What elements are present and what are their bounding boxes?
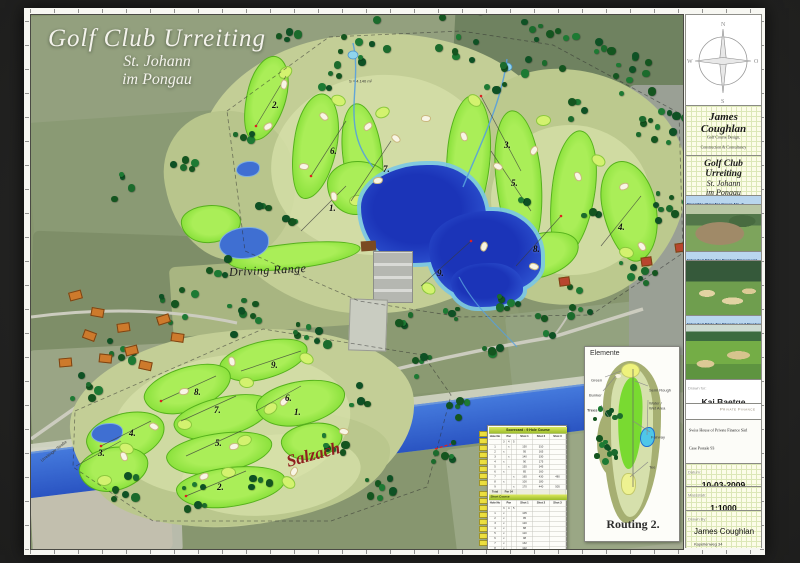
hole-number: 5. xyxy=(511,178,518,188)
table-cell: 8 xyxy=(489,547,502,551)
title-block-sidebar: N O S W James Coughlan Golf Course Desig… xyxy=(685,14,762,548)
legend-fairway: Fairway xyxy=(651,429,679,447)
hole-number: 7. xyxy=(214,405,221,415)
scorecard-panel: Scorecard : 9 Hole CourseHole NoParShot … xyxy=(487,425,567,550)
desktop-background: Golf Club Urreiting St. Johann im Pongau… xyxy=(0,0,800,563)
drawn-by-block: Drawn By: James Coughlan Kapellenweg 34 … xyxy=(686,510,761,548)
hole-number: 2. xyxy=(217,482,224,492)
designer-line1: Golf Course Design, xyxy=(686,135,761,140)
photo-shaping-style xyxy=(686,324,761,379)
hole-number: 1. xyxy=(294,407,301,417)
client-address-block: Swiss House of Private Finance Sàrl Case… xyxy=(686,419,761,463)
hole-number: 4. xyxy=(129,428,136,438)
client-logo: Swiss House of Private Finance TM xyxy=(686,403,761,419)
photo3-caption: Intended Style for Shaping and Bunkering xyxy=(686,315,761,324)
hole-number: 6. xyxy=(330,146,337,156)
hole-number: 7. xyxy=(383,164,390,174)
hole-number: 2. xyxy=(272,100,279,110)
address-line: Swiss House of Private Finance Sàrl xyxy=(689,428,747,433)
hole-number: 1. xyxy=(329,203,336,213)
course-map: Golf Club Urreiting St. Johann im Pongau… xyxy=(30,14,684,550)
logo-text-right: Private Finance xyxy=(720,407,755,412)
photo1-caption: Possible View for Green No. 2 xyxy=(686,195,761,204)
designer-line2: Construction & Consultancy xyxy=(686,145,761,150)
table-cell xyxy=(533,547,550,551)
address-line: Case Postale 93 xyxy=(689,446,714,451)
scale-value: 1:1000 xyxy=(686,503,761,510)
drawn-for-block: Drawn for: Kai Baetge xyxy=(686,379,761,403)
table-row: 8x102 xyxy=(489,546,567,550)
hole-number: 9. xyxy=(271,360,278,370)
designer-block: James Coughlan Golf Course Design, Const… xyxy=(686,105,761,155)
plan-sheet: Golf Club Urreiting St. Johann im Pongau… xyxy=(24,8,765,555)
table-cell: 102 xyxy=(517,547,534,551)
routing-label: Routing 2. xyxy=(585,517,681,532)
photo2-caption: Intended Style for Bunker Placement xyxy=(686,251,761,260)
ruler-ticks-bottom xyxy=(30,550,762,554)
drawn-by-name: James Coughlan xyxy=(694,527,761,536)
drawn-for-label: Drawn for: xyxy=(688,386,706,391)
ruler-ticks-left xyxy=(25,14,29,550)
hole-number: 5. xyxy=(215,438,222,448)
photo-bunker-style xyxy=(686,260,761,315)
compass-rose-icon: N O S W xyxy=(686,15,761,105)
project-block: Golf Club Urreiting St. Johann im Pongau xyxy=(686,155,761,195)
photo-green-view xyxy=(686,204,761,251)
hole-number: 8. xyxy=(533,244,540,254)
elemente-panel: Elemente Green Bunker Trees Semi Rough W… xyxy=(584,346,680,542)
project-line1: Golf Club Urreiting xyxy=(686,159,761,179)
scale-block: Massstab: 1:1000 xyxy=(686,486,761,510)
hole-number: 3. xyxy=(504,140,511,150)
hole-number: 8. xyxy=(194,387,201,397)
hole-number: 4. xyxy=(618,222,625,232)
date-block: Datum: 10-03-2009 xyxy=(686,463,761,486)
compass-box: N O S W xyxy=(686,15,761,105)
hole-number: 3. xyxy=(98,448,105,458)
project-line3: im Pongau xyxy=(686,188,761,195)
table-cell xyxy=(550,547,567,551)
svg-text:O: O xyxy=(754,59,759,65)
scale-label: Massstab: xyxy=(688,493,706,498)
hole-number: 9. xyxy=(437,268,444,278)
drawn-by-label: Drawn By: xyxy=(688,517,706,522)
legend-tee: Tee xyxy=(649,459,662,477)
drawn-by-addr1: Kapellenweg 34 xyxy=(694,542,722,547)
project-line2: St. Johann xyxy=(686,179,761,188)
scorecard-table: Scorecard : 9 Hole CourseHole NoParShot … xyxy=(489,427,567,550)
legend-wet-area: Wet Area xyxy=(649,400,682,418)
hole-number: 6. xyxy=(285,393,292,403)
date-label: Datum: xyxy=(688,470,701,475)
svg-text:N: N xyxy=(721,22,726,28)
designer-name: James Coughlan xyxy=(686,111,761,135)
ruler-ticks-top xyxy=(30,9,762,13)
svg-text:W: W xyxy=(687,59,693,65)
legend-trees: Trees xyxy=(587,402,608,420)
